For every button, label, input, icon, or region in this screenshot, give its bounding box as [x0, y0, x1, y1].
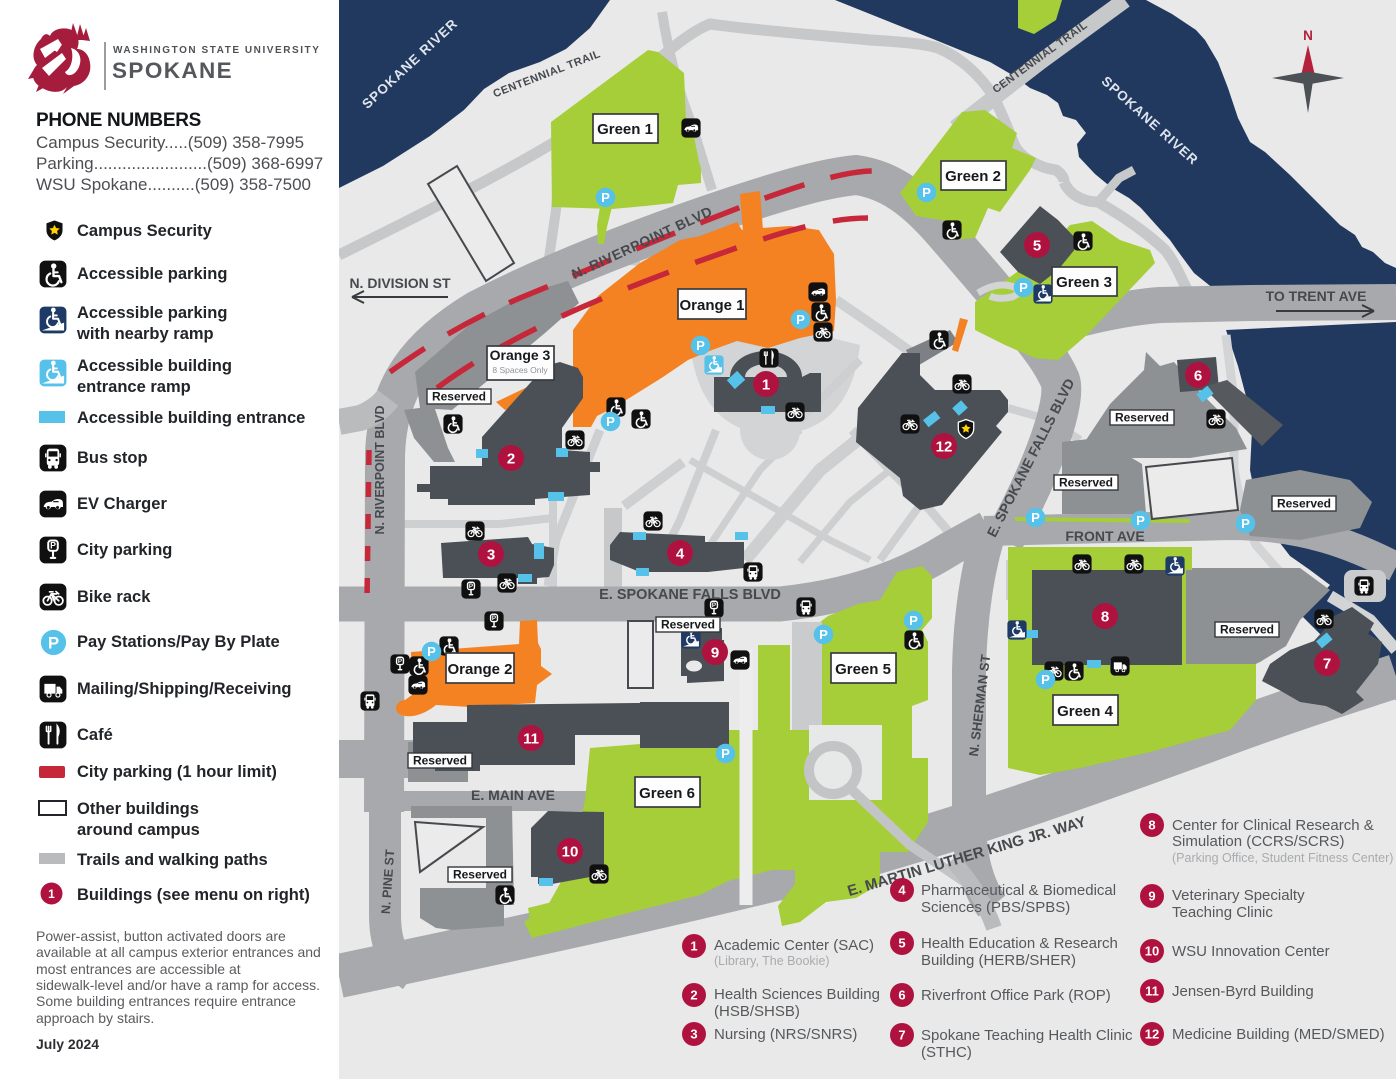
svg-text:7: 7	[1323, 656, 1331, 673]
svg-text:Reserved: Reserved	[432, 390, 486, 404]
svg-text:Veterinary Specialty: Veterinary Specialty	[1172, 887, 1305, 904]
svg-text:Teaching Clinic: Teaching Clinic	[1172, 904, 1273, 921]
svg-text:Green 4: Green 4	[1057, 703, 1114, 720]
svg-text:Reserved: Reserved	[1220, 623, 1274, 637]
svg-text:Center for Clinical Research &: Center for Clinical Research &	[1172, 817, 1374, 834]
svg-text:8: 8	[1101, 609, 1109, 626]
svg-text:Jensen-Byrd Building: Jensen-Byrd Building	[1172, 983, 1314, 1000]
svg-text:8 Spaces Only: 8 Spaces Only	[492, 365, 548, 375]
svg-text:Sciences (PBS/SPBS): Sciences (PBS/SPBS)	[921, 899, 1070, 916]
svg-text:9: 9	[1148, 889, 1155, 904]
svg-text:11: 11	[1145, 984, 1159, 999]
svg-text:Reserved: Reserved	[1059, 476, 1113, 490]
svg-text:FRONT AVE: FRONT AVE	[1065, 528, 1144, 544]
svg-text:WSU Innovation Center: WSU Innovation Center	[1172, 943, 1330, 960]
svg-text:3: 3	[690, 1027, 697, 1042]
svg-text:Pharmaceutical & Biomedical: Pharmaceutical & Biomedical	[921, 882, 1116, 899]
svg-text:Reserved: Reserved	[1277, 497, 1331, 511]
svg-text:Academic Center (SAC): Academic Center (SAC)	[714, 937, 874, 954]
svg-text:5: 5	[898, 936, 905, 951]
svg-text:TO TRENT AVE: TO TRENT AVE	[1266, 288, 1367, 304]
svg-text:(STHC): (STHC)	[921, 1044, 972, 1061]
svg-text:6: 6	[1194, 368, 1202, 385]
svg-text:1: 1	[690, 939, 697, 954]
svg-text:Reserved: Reserved	[1115, 411, 1169, 425]
svg-text:Orange 3: Orange 3	[490, 347, 551, 363]
svg-text:Health Sciences Building: Health Sciences Building	[714, 986, 880, 1003]
svg-text:(Library, The Bookie): (Library, The Bookie)	[714, 954, 830, 968]
svg-text:Nursing (NRS/SNRS): Nursing (NRS/SNRS)	[714, 1026, 857, 1043]
svg-text:Green 3: Green 3	[1056, 274, 1112, 291]
svg-text:1: 1	[48, 887, 55, 901]
svg-text:Reserved: Reserved	[661, 618, 715, 632]
svg-text:Green 5: Green 5	[835, 661, 891, 678]
svg-text:10: 10	[1145, 944, 1159, 959]
svg-text:1: 1	[762, 377, 770, 394]
svg-text:12: 12	[1145, 1027, 1159, 1042]
svg-text:3: 3	[487, 547, 495, 564]
svg-text:12: 12	[936, 439, 953, 456]
svg-text:N. RIVERPOINT BLVD: N. RIVERPOINT BLVD	[373, 406, 387, 535]
svg-text:E. MAIN AVE: E. MAIN AVE	[471, 787, 555, 803]
svg-text:2: 2	[690, 988, 697, 1003]
svg-text:9: 9	[711, 645, 719, 662]
svg-text:Health Education & Research: Health Education & Research	[921, 935, 1118, 952]
svg-text:Orange 1: Orange 1	[679, 297, 744, 314]
svg-text:Orange 2: Orange 2	[447, 661, 512, 678]
svg-text:4: 4	[898, 883, 906, 898]
svg-text:Reserved: Reserved	[453, 868, 507, 882]
svg-text:5: 5	[1033, 238, 1041, 255]
svg-text:Reserved: Reserved	[413, 754, 467, 768]
svg-text:Green 1: Green 1	[597, 121, 653, 138]
svg-text:N: N	[1303, 28, 1313, 43]
svg-text:Green 6: Green 6	[639, 785, 695, 802]
svg-text:Green 2: Green 2	[945, 168, 1001, 185]
svg-text:(Parking Office, Student Fitne: (Parking Office, Student Fitness Center)	[1172, 851, 1393, 865]
svg-text:4: 4	[676, 546, 685, 563]
svg-text:8: 8	[1148, 818, 1155, 833]
svg-text:Riverfront Office Park (ROP): Riverfront Office Park (ROP)	[921, 987, 1111, 1004]
svg-text:6: 6	[898, 988, 905, 1003]
svg-text:Simulation (CCRS/SCRS): Simulation (CCRS/SCRS)	[1172, 833, 1345, 850]
svg-text:10: 10	[562, 844, 579, 861]
svg-text:2: 2	[507, 451, 515, 468]
svg-text:Medicine Building (MED/SMED): Medicine Building (MED/SMED)	[1172, 1026, 1385, 1043]
svg-text:N. DIVISION ST: N. DIVISION ST	[349, 275, 451, 291]
svg-text:7: 7	[898, 1028, 905, 1043]
svg-text:Building (HERB/SHER): Building (HERB/SHER)	[921, 952, 1076, 969]
svg-text:(HSB/SHSB): (HSB/SHSB)	[714, 1003, 800, 1020]
svg-text:11: 11	[523, 731, 539, 748]
svg-text:E. SPOKANE FALLS BLVD: E. SPOKANE FALLS BLVD	[599, 587, 781, 603]
svg-text:Spokane Teaching Health Clinic: Spokane Teaching Health Clinic	[921, 1027, 1133, 1044]
